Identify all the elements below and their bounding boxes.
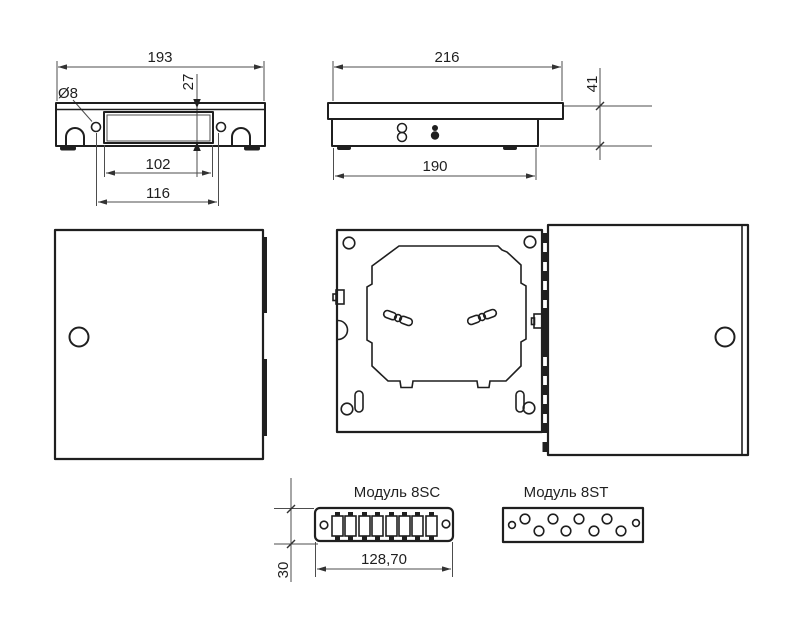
sc-port: [386, 512, 397, 540]
recessed-panel-inner: [107, 115, 210, 141]
door-lock-hole: [70, 328, 89, 347]
dim-label-128-70: 128,70: [361, 551, 407, 568]
dimension-cover-width: 216: [333, 49, 562, 101]
splice-cassette-outline: [367, 246, 526, 388]
latch-clip-left-tab: [333, 294, 336, 301]
dimension-lid-offset: 27: [180, 74, 201, 177]
st-port: [589, 526, 599, 536]
dimension-overall-width: 193: [57, 49, 264, 101]
sc-port: [426, 512, 437, 540]
dim-label-27: 27: [180, 74, 197, 91]
st-plate: [503, 508, 643, 542]
st-port: [548, 514, 558, 524]
dim-label-102: 102: [145, 156, 170, 173]
keyhole-filled-top: [432, 125, 438, 131]
cover-lid: [328, 103, 563, 119]
corner-hole-top-left: [343, 237, 355, 249]
sc-ports: [332, 512, 437, 540]
sc-port: [332, 512, 343, 540]
st-plate-screw-right: [633, 520, 640, 527]
cable-notch-left: [338, 321, 348, 340]
front-view-open: [333, 225, 748, 455]
side-view: 216 41 190: [328, 49, 652, 180]
dim-label-116: 116: [146, 185, 170, 202]
st-port: [561, 526, 571, 536]
foot-left: [337, 146, 351, 150]
sc-port: [412, 512, 423, 540]
st-port: [534, 526, 544, 536]
foot-left: [60, 146, 76, 151]
foot-right: [244, 146, 260, 151]
sc-port: [372, 512, 383, 540]
st-plate-screw-left: [509, 522, 516, 529]
hinge-tab-top: [263, 237, 267, 313]
corner-hole-bottom-left: [341, 403, 353, 415]
mount-slot-left: [355, 391, 363, 412]
mounting-hole-right: [217, 123, 226, 132]
st-port: [602, 514, 612, 524]
fiber-spool-right: [467, 308, 498, 325]
corner-hole-bottom-right: [523, 402, 535, 414]
module-8sc: Модуль 8SC 30 128,70: [274, 478, 453, 582]
st-ports: [520, 514, 626, 536]
foot-right: [503, 146, 517, 150]
technical-drawing-page: 193 27 Ø8 102: [0, 0, 804, 636]
dim-label-30: 30: [275, 562, 292, 579]
module-8st: Модуль 8ST: [503, 484, 643, 542]
dimension-module-width: 128,70: [316, 542, 453, 577]
dim-label-216: 216: [434, 49, 459, 66]
dim-label-193: 193: [147, 49, 172, 66]
dimension-body-width: 190: [334, 148, 537, 180]
front-view-closed: [55, 230, 267, 459]
sc-port: [359, 512, 370, 540]
st-port: [616, 526, 626, 536]
st-port: [520, 514, 530, 524]
dim-label-190: 190: [422, 158, 447, 175]
cable-arch-right: [232, 128, 250, 146]
keyhole-filled-bottom: [431, 131, 439, 139]
st-port: [574, 514, 584, 524]
sc-port: [345, 512, 356, 540]
keyhole-outline-bottom: [398, 133, 407, 142]
module-8st-title: Модуль 8ST: [524, 484, 609, 501]
fiber-box-drawing: 193 27 Ø8 102: [0, 0, 804, 636]
dim-label-d8: Ø8: [58, 85, 78, 102]
door-lock-hole-open: [716, 328, 735, 347]
corner-hole-top-right: [524, 236, 536, 248]
latch-clip-right-tab: [532, 318, 535, 325]
dimension-module-height: 30: [274, 478, 318, 582]
sc-plate-screw-left: [320, 521, 328, 529]
module-8sc-title: Модуль 8SC: [354, 484, 441, 501]
cable-arch-left: [66, 128, 84, 146]
sc-port: [399, 512, 410, 540]
dim-label-41: 41: [584, 76, 601, 93]
open-door-panel: [548, 225, 748, 455]
fiber-spool-left: [383, 309, 414, 326]
sc-plate-screw-right: [442, 520, 450, 528]
dimension-total-height: 41: [540, 68, 652, 160]
mounting-hole-left: [92, 123, 101, 132]
hinge-tab-bottom: [263, 359, 267, 436]
top-view: 193 27 Ø8 102: [56, 49, 265, 206]
keyhole-outline-top: [398, 124, 407, 133]
